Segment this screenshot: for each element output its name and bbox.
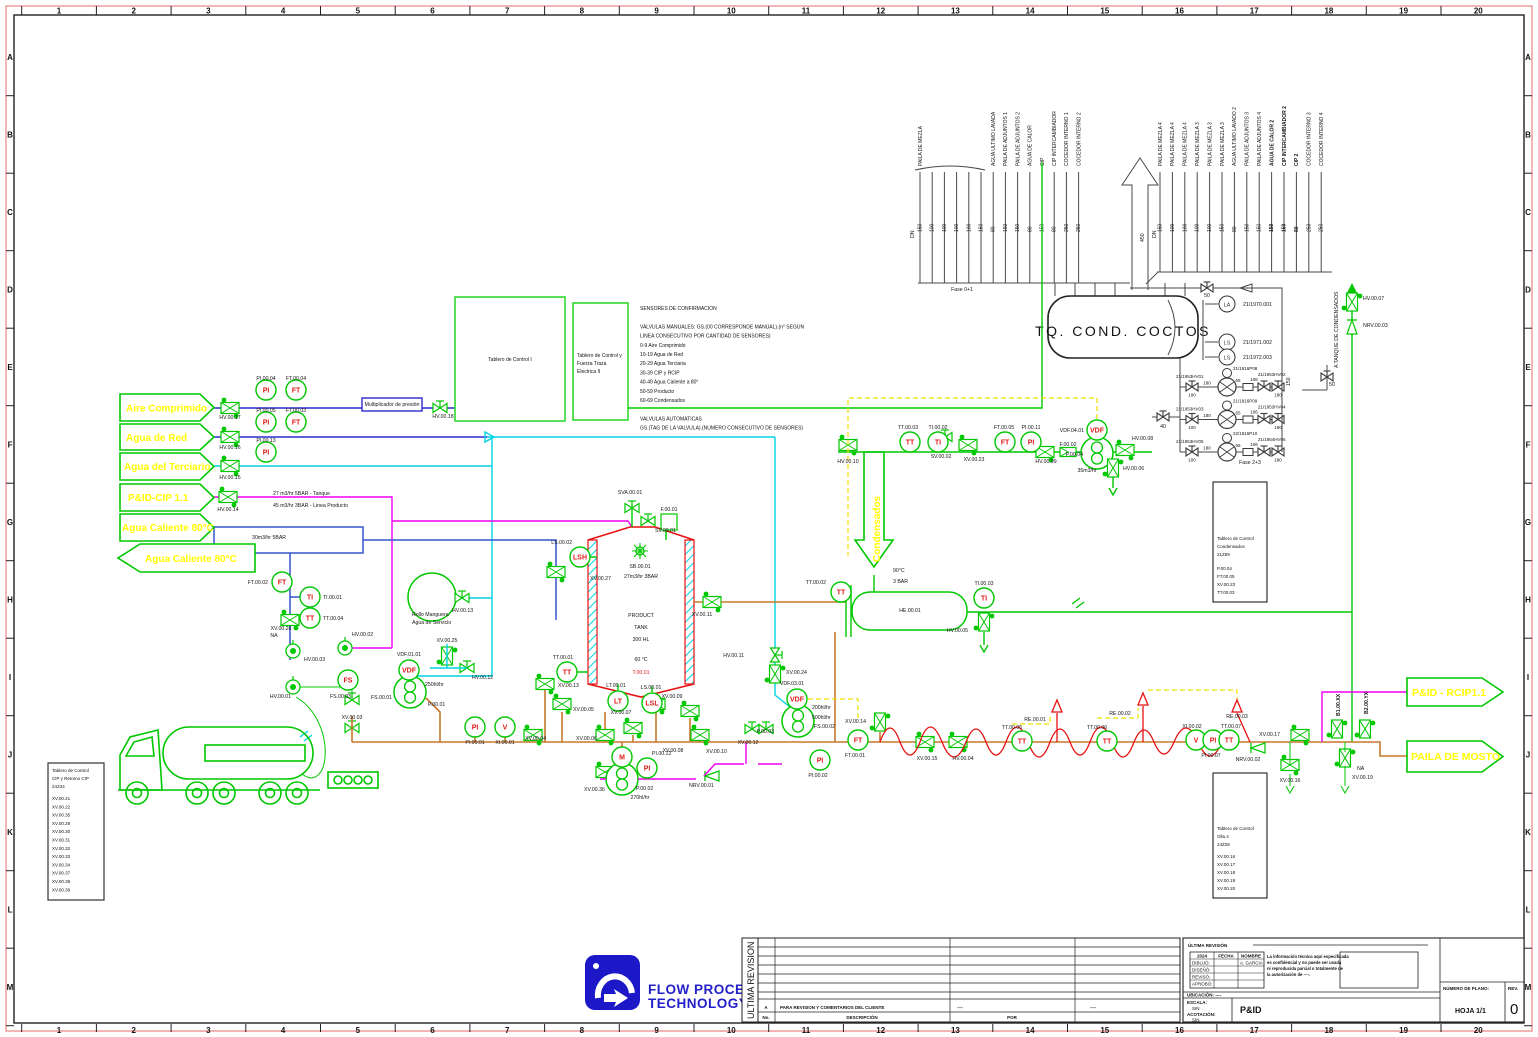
instrument-bubble: PI PI.00.04 (256, 376, 276, 400)
svg-text:J: J (1526, 751, 1530, 760)
svg-text:NRV.00.03: NRV.00.03 (1363, 323, 1388, 329)
svg-text:FT.00.03: FT.00.03 (286, 408, 306, 414)
right-destination: P&ID - RCIP1.1 PAILA DE MOSTO (1251, 678, 1503, 793)
svg-text:HV.00.02: HV.00.02 (352, 632, 373, 638)
svg-text:F: F (1526, 441, 1531, 450)
instrument-bubble: FT FT.00.03 (286, 408, 306, 432)
flag-aire-comprimido: Aire Comprimido (120, 394, 214, 421)
pipe-riser: PAILA DE ADJUNTOS 1 150 (1003, 112, 1009, 283)
grid-row-label: M (1524, 983, 1532, 1026)
grid-col-label: 20 (1441, 1024, 1483, 1035)
note-line: LINEA CONSECUTIVO POR CANTIDAD DE SENSOR… (640, 334, 771, 340)
board-title: CIP y Retorno CIP (52, 776, 89, 781)
svg-text:21/1971.002: 21/1971.002 (1243, 340, 1272, 346)
board-item: XV.00.21 (52, 796, 71, 801)
svg-text:TT.00.01: TT.00.01 (553, 655, 573, 661)
svg-text:Agua del Terciario: Agua del Terciario (124, 462, 211, 473)
grid-col-label: 6 (395, 6, 435, 16)
svg-text:HV.00.05: HV.00.05 (947, 628, 968, 634)
pipe-riser: COCEDOR INTERNO 2 250 (1076, 112, 1082, 283)
pipe-riser: PAILA DE MEZLA 3 100 (1194, 122, 1201, 272)
svg-text:150: 150 (1286, 377, 1292, 386)
svg-text:4: 4 (281, 7, 286, 16)
svg-text:XV.00.33: XV.00.33 (52, 854, 71, 859)
svg-text:PAILA DE MEZLA 3: PAILA DE MEZLA 3 (1207, 122, 1213, 166)
tag-label: Agua de Servicio (412, 620, 451, 626)
svg-text:PAILA DE ADJUNTOS 3: PAILA DE ADJUNTOS 3 (1245, 112, 1251, 166)
instrument-bubble: TT TT.00.05 (1002, 725, 1032, 751)
svg-text:10: 10 (727, 1026, 736, 1035)
grid-col-label: 10 (694, 6, 736, 16)
revision-header-no: No. (762, 1015, 769, 1020)
svg-text:PI.00.01: PI.00.01 (465, 740, 484, 746)
svg-text:40: 40 (1160, 424, 1166, 430)
svg-text:XV.00.21: XV.00.21 (52, 796, 71, 801)
tag-label: 40 (1160, 424, 1166, 430)
svg-text:XV.00.14: XV.00.14 (845, 719, 866, 725)
tag-label: DN (910, 230, 916, 238)
svg-text:PI: PI (817, 758, 824, 765)
product-tank (577, 501, 846, 697)
flag-mosto: PAILA DE MOSTO (1407, 741, 1503, 772)
control-panel-2-label: Electrica II (577, 369, 600, 375)
grid-col-label: 13 (918, 6, 960, 16)
tag-label: HV.00.12 (472, 675, 493, 681)
svg-text:XV.00.20: XV.00.20 (1217, 886, 1236, 891)
svg-text:150: 150 (1003, 223, 1009, 232)
svg-text:TT.00.02: TT.00.02 (806, 580, 826, 586)
svg-text:150: 150 (1158, 223, 1164, 232)
tag-label: HV.00.01 (270, 694, 291, 700)
svg-text:DN: DN (1152, 230, 1158, 238)
svg-text:T.00.01: T.00.01 (632, 670, 649, 676)
title-year: 2024 (1197, 954, 1208, 959)
pump-train: 21/1953HV05 22/1816P10 21/1954HV06 100 1… (1176, 431, 1286, 463)
svg-text:XV.00.17: XV.00.17 (1217, 862, 1236, 867)
title-rev-label: REV. (1508, 986, 1518, 991)
svg-text:HV.00.13: HV.00.13 (452, 608, 473, 614)
instrument-bubble: PI PI.00.11 (1021, 425, 1041, 452)
svg-text:17: 17 (1250, 1026, 1259, 1035)
title-aprobo: APROBÓ: (1192, 981, 1213, 987)
tag-label: HV.00.04 (952, 756, 973, 762)
svg-text:TT.00.03: TT.00.03 (1217, 590, 1235, 595)
tag-label: FS.00.02 (814, 724, 835, 730)
svg-text:PI.00.05: PI.00.05 (256, 408, 275, 414)
svg-text:PI: PI (1028, 440, 1035, 447)
svg-text:PAILA DE MEZLA 3: PAILA DE MEZLA 3 (1195, 122, 1201, 166)
instrument-bubble: M (612, 747, 632, 767)
svg-text:K: K (1525, 828, 1531, 837)
grid-col-label: 20 (1441, 6, 1483, 16)
tag-label: 50 (1204, 293, 1210, 299)
tag-label: 270hl/hr (631, 795, 650, 801)
svg-text:FT.00.04: FT.00.04 (286, 376, 306, 382)
tag-label: HV.00.05 (947, 628, 968, 634)
note-line: 10-19 Agua de Red (640, 352, 683, 358)
board-title: Tablero de Control (1217, 826, 1254, 831)
svg-text:XV.00.16: XV.00.16 (1217, 854, 1236, 859)
svg-text:7: 7 (505, 1026, 510, 1035)
svg-text:TT.00.06: TT.00.06 (1087, 725, 1107, 731)
svg-text:6: 6 (430, 7, 435, 16)
tag-label: Fase 2+3 (1239, 460, 1261, 466)
grid-row-label: I (1524, 673, 1532, 716)
tag-label: NA (270, 633, 278, 639)
svg-text:60 °C: 60 °C (634, 657, 647, 663)
grid-col-label: 3 (171, 6, 211, 16)
svg-text:250: 250 (1306, 223, 1312, 232)
svg-text:50-59 Producto: 50-59 Producto (640, 389, 674, 395)
grid-col-label: 13 (918, 1024, 960, 1035)
svg-text:21/1953HV03: 21/1953HV03 (1176, 407, 1204, 412)
pipe-riser: AGUA ULTIMO LAVADA 80 (991, 111, 997, 283)
board-item: XV.00.18 (1217, 870, 1236, 875)
tank-title: TQ. COND. COCTOS (1035, 323, 1211, 339)
svg-text:180: 180 (1203, 446, 1211, 451)
svg-text:PI.00.02: PI.00.02 (808, 773, 827, 779)
board-title: Tablero de Control (1217, 536, 1254, 541)
svg-text:HV.00.12: HV.00.12 (472, 675, 493, 681)
svg-text:I: I (1527, 673, 1529, 682)
instrument-bubble: FT FT.00.05 (994, 425, 1015, 452)
svg-text:B2.00.YX: B2.00.YX (1364, 691, 1370, 714)
instrument-bubble: PI PI.00.02 (808, 750, 830, 779)
tag-label: HV.00.15 (219, 475, 240, 481)
svg-text:F.00.01: F.00.01 (660, 507, 677, 513)
instrument-bubble: LS 21/1971.002 (1219, 334, 1272, 350)
grid-col-label: 9 (619, 6, 659, 16)
svg-text:P&ID-CIP 1.1: P&ID-CIP 1.1 (128, 493, 189, 504)
svg-text:ni reproducida parcial o total: ni reproducida parcial o totalmente de (1267, 966, 1344, 971)
svg-text:180: 180 (1203, 413, 1211, 418)
instrument-bubble: VDF VDF.04.01 (1060, 420, 1107, 440)
svg-text:80: 80 (1027, 226, 1033, 232)
grid-col-label: 18 (1292, 6, 1334, 16)
note-line: 40-49 Agua Caliente a 80° (640, 380, 698, 386)
tag-label: HE.00.01 (899, 608, 921, 614)
note-line: 30-39 CIP y RCIP (640, 370, 680, 376)
tag-label: SV.00.02 (931, 454, 952, 460)
svg-text:LINEA CONSECUTIVO POR CANTIDAD: LINEA CONSECUTIVO POR CANTIDAD DE SENSOR… (640, 334, 771, 340)
board-title: 24Z34 (52, 784, 65, 789)
svg-text:FS: FS (344, 678, 353, 685)
pipe-riser: PAILA DE MEZLA 3 100 (1207, 122, 1214, 272)
board-title: Condensados (1217, 544, 1246, 549)
grid-col-label: 15 (1068, 6, 1110, 16)
svg-text:TT.00.04: TT.00.04 (323, 616, 343, 622)
title-reviso: REVISÓ: (1192, 974, 1210, 980)
note-line: 60-69 Condensados (640, 398, 686, 404)
svg-text:30m3/hr 5BAR: 30m3/hr 5BAR (252, 535, 286, 541)
svg-text:150: 150 (1015, 223, 1021, 232)
svg-text:150: 150 (1257, 223, 1263, 232)
title-diseno: DISEÑÓ: (1192, 967, 1211, 973)
flag-agua-de-red: Agua de Red (120, 424, 214, 450)
svg-text:PI.00.13: PI.00.13 (256, 438, 275, 444)
svg-text:15: 15 (1100, 7, 1109, 16)
svg-text:XV.00.23: XV.00.23 (1217, 582, 1236, 587)
svg-text:180: 180 (1203, 381, 1211, 386)
svg-text:3 BAR: 3 BAR (893, 579, 908, 585)
svg-text:V: V (1194, 738, 1199, 745)
svg-text:HV.00.01: HV.00.01 (270, 694, 291, 700)
grid-row-label: B (1524, 131, 1532, 174)
tag-label: 150 (1286, 377, 1292, 386)
svg-text:500hl/hr: 500hl/hr (812, 715, 831, 721)
board-item: P.00.04 (1217, 566, 1232, 571)
svg-text:XV.00.12: XV.00.12 (738, 740, 759, 746)
svg-text:12: 12 (876, 1026, 885, 1035)
title-fecha: FECHA (1218, 954, 1234, 959)
svg-text:P.00.04: P.00.04 (1066, 452, 1083, 458)
svg-text:TT.00.05: TT.00.05 (1002, 725, 1022, 731)
pipe-riser: PAILA DE MEZLA 4 150 (1157, 122, 1164, 272)
heat-exchanger (835, 575, 1352, 742)
svg-text:3: 3 (206, 1026, 211, 1035)
svg-text:180: 180 (1274, 458, 1282, 463)
svg-text:XV.00.34: XV.00.34 (52, 862, 71, 867)
svg-text:PI: PI (472, 725, 479, 732)
svg-text:L: L (8, 906, 13, 915)
svg-text:150: 150 (1269, 223, 1275, 232)
instrument-bubble: LSL LS.00.01 (641, 685, 662, 713)
svg-text:14: 14 (1026, 1026, 1035, 1035)
pipe-header-group-1: PAILA DE MEZLA 150 100 100 100 100 (915, 111, 1185, 296)
svg-text:XV.00.06: XV.00.06 (576, 736, 597, 742)
svg-text:XV.00.11: XV.00.11 (692, 612, 713, 618)
svg-text:106: 106 (1250, 410, 1258, 415)
svg-text:XV.00.25: XV.00.25 (437, 638, 458, 644)
tag-label: XV.00.17 (1259, 732, 1280, 738)
instrument-bubble: PI PI.00.13 (256, 438, 276, 462)
svg-text:21/1972.003: 21/1972.003 (1243, 355, 1272, 361)
svg-text:PI: PI (263, 420, 270, 427)
svg-text:TT: TT (1018, 739, 1027, 746)
title-rev-value: 0 (1510, 1001, 1518, 1018)
svg-text:16: 16 (1175, 1026, 1184, 1035)
svg-text:TT: TT (306, 616, 315, 623)
svg-text:LA: LA (1224, 303, 1231, 309)
svg-text:FS.00.01: FS.00.01 (371, 695, 392, 701)
board-cip: Tablero de Control CIP y Retorno CIP 24Z… (48, 763, 104, 900)
pipe-riser: COCEDOR INTERNO 3 250 (1306, 112, 1313, 272)
svg-text:VALVULAS AUTOMATICAS: VALVULAS AUTOMATICAS (640, 416, 703, 422)
instrument-bubble: LSH LS.00.02 (551, 540, 590, 567)
title-escala: ESCALA: (1187, 1000, 1208, 1005)
pipe-riser: COCEDOR INTERNO 4 250 (1318, 112, 1325, 272)
svg-text:AGUA ULTIMO LAVADO 2: AGUA ULTIMO LAVADO 2 (1232, 107, 1238, 166)
svg-text:XV.00.15: XV.00.15 (917, 756, 938, 762)
svg-text:PI.00.07: PI.00.07 (1201, 753, 1220, 759)
svg-text:DN: DN (910, 230, 916, 238)
svg-text:XV.00.31: XV.00.31 (52, 838, 71, 843)
svg-text:XV.00.30: XV.00.30 (52, 829, 71, 834)
svg-text:SV.00.01: SV.00.01 (655, 528, 676, 534)
svg-text:1: 1 (57, 7, 62, 16)
svg-text:FT: FT (278, 580, 287, 587)
svg-text:22/1816P10: 22/1816P10 (1233, 431, 1258, 436)
pipe-riser: PAILA DE ADJUNTOS 3 150 (1244, 112, 1251, 272)
pipe-riser: CIP INTERCAMBIADOR 2 150 (1281, 106, 1288, 272)
svg-text:FT: FT (854, 738, 863, 745)
svg-text:250: 250 (1319, 223, 1325, 232)
tag-label: P.00.01 (428, 702, 445, 708)
tag-label: HV.00.08 (1132, 436, 1153, 442)
svg-text:H: H (7, 596, 13, 605)
grid-row-label: K (6, 828, 14, 871)
svg-text:NRV.00.02: NRV.00.02 (1236, 757, 1261, 763)
svg-text:2: 2 (131, 7, 136, 16)
big-vent-arrow (1122, 158, 1158, 290)
tag-label: P.00.02 (636, 786, 653, 792)
svg-text:27m3/hr 3BAR: 27m3/hr 3BAR (624, 574, 658, 580)
board-item: XV.00.20 (1217, 886, 1236, 891)
svg-text:5: 5 (356, 7, 361, 16)
tag-label: P.00.03 (757, 729, 774, 735)
svg-text:Agua de Servicio: Agua de Servicio (412, 620, 451, 626)
board-item: XV.00.31 (52, 838, 71, 843)
grid-col-label: 16 (1142, 6, 1184, 16)
grid-row-label: G (1524, 518, 1532, 561)
pipe-riser: 100 (942, 172, 948, 283)
grid-col-label: 15 (1068, 1024, 1110, 1035)
svg-text:XV.00.24: XV.00.24 (786, 670, 807, 676)
grid-col-label: 8 (545, 1024, 585, 1035)
svg-text:50: 50 (1329, 382, 1335, 388)
tag-label: P.00.04 (1066, 452, 1083, 458)
pipe-riser: 150 (979, 172, 985, 283)
svg-text:C: C (1525, 208, 1531, 217)
grid-row-label: D (6, 286, 14, 329)
board-item: XV.00.17 (1217, 862, 1236, 867)
svg-text:9: 9 (654, 7, 659, 16)
note-line: 20-29 Agua Terciaria (640, 361, 686, 367)
svg-text:B1.00.XX: B1.00.XX (1336, 693, 1342, 716)
tag-label: FS.00.03 (330, 694, 351, 700)
svg-text:8: 8 (580, 7, 585, 16)
tag-label: HV.00.06 (1123, 466, 1144, 472)
svg-text:11: 11 (802, 7, 811, 16)
board-item: XV.00.32 (52, 846, 71, 851)
instrument-bubble: FT FT.00.02 (248, 572, 292, 592)
tag-label: 500hl/hr (812, 715, 831, 721)
svg-text:PI: PI (1210, 738, 1217, 745)
svg-text:14: 14 (1026, 7, 1035, 16)
pump-p0002 (606, 763, 638, 795)
svg-text:PI.00.11: PI.00.11 (1022, 425, 1041, 431)
svg-text:P.00.02: P.00.02 (636, 786, 653, 792)
svg-text:21/1953HV01: 21/1953HV01 (1176, 374, 1204, 379)
tag-label: XV.00.19 (1352, 775, 1373, 781)
instrument-bubble: FT FT.00.01 (845, 730, 868, 759)
svg-text:HV.00.14: HV.00.14 (217, 507, 238, 513)
svg-text:Fase 2+3: Fase 2+3 (1239, 460, 1261, 466)
svg-text:PI: PI (644, 766, 651, 773)
grid-col-label: 2 (96, 1024, 136, 1035)
svg-text:Rollo Manguera: Rollo Manguera (412, 612, 449, 618)
svg-text:10-19 Agua de Red: 10-19 Agua de Red (640, 352, 683, 358)
svg-text:COCEDOR INTERNO 1: COCEDOR INTERNO 1 (1064, 112, 1070, 166)
svg-text:PAILA DE MEZLA 3: PAILA DE MEZLA 3 (1220, 122, 1226, 166)
grid-col-label: 2 (96, 6, 136, 16)
svg-text:XV.00.38: XV.00.38 (52, 879, 71, 884)
svg-text:21/1816P09: 21/1816P09 (1233, 399, 1258, 404)
svg-text:40-49 Agua Caliente a 80°: 40-49 Agua Caliente a 80° (640, 380, 698, 386)
svg-text:100: 100 (930, 223, 936, 232)
svg-text:I: I (9, 673, 11, 682)
grid-col-label: 5 (321, 6, 361, 16)
grid-col-label: 7 (470, 1024, 510, 1035)
svg-text:3: 3 (206, 7, 211, 16)
pipe-riser: CIP INTERCAMBIADOR 80 (1052, 111, 1058, 283)
svg-text:XV.00.39: XV.00.39 (52, 887, 71, 892)
svg-text:XV.00.19: XV.00.19 (1217, 878, 1236, 883)
svg-text:TI: TI (981, 596, 987, 603)
grid-col-label: 11 (769, 1024, 811, 1035)
title-acotacion-value: SIN (1192, 1018, 1200, 1023)
grid-col-label: 12 (843, 1024, 885, 1035)
svg-text:PI.00.04: PI.00.04 (256, 376, 275, 382)
grid-row-label: D (1524, 286, 1532, 329)
pipe-riser: AGUA ULTIMO LAVADO 2 80 (1231, 107, 1238, 272)
svg-text:PI: PI (263, 388, 270, 395)
svg-text:250hl/hr: 250hl/hr (425, 682, 444, 688)
tag-label: Fase 0+1 (951, 287, 973, 293)
svg-text:B: B (7, 131, 13, 140)
svg-text:65: 65 (1235, 443, 1241, 448)
flag-agua-caliente-out: Agua Caliente 80°C (118, 544, 255, 572)
svg-text:Agua de Red: Agua de Red (126, 433, 187, 444)
grid-col-label: 4 (246, 1024, 286, 1035)
note-line: 0-9 Aire Comprimido (640, 343, 686, 349)
sheet-frame: 1234567891011121314151617181920 12345678… (6, 6, 1532, 1035)
svg-text:CIP: CIP (1040, 157, 1046, 166)
tag-label: 30m3/hr 5BAR (252, 535, 286, 541)
board-item: XV.00.33 (52, 854, 71, 859)
note-line: SENSORES DE CONFIRMACION (640, 306, 717, 312)
tag-label: XV.00.36 (584, 787, 605, 793)
svg-text:XI.00.01: XI.00.01 (495, 740, 514, 746)
svg-text:XV.00.23: XV.00.23 (964, 457, 985, 463)
tag-label: HV.00.09 (1035, 459, 1056, 465)
board-item: XV.00.34 (52, 862, 71, 867)
svg-text:XV.00.37: XV.00.37 (52, 871, 71, 876)
tag-label: HV.00.14 (217, 507, 238, 513)
tag-label: XV.00.12 (738, 740, 759, 746)
board-title: 24Z28 (1217, 842, 1230, 847)
instrument-bubble: FS (338, 670, 358, 690)
tag-label: HV.00.13 (452, 608, 473, 614)
grid-rows-left: ABCDEFGHIJKLM (6, 53, 14, 1026)
instrument-bubble: TT TT.00.02 (806, 580, 851, 602)
grid-col-label: 14 (993, 6, 1035, 16)
svg-text:XI.00.02: XI.00.02 (1182, 724, 1201, 730)
svg-text:TT: TT (1225, 738, 1234, 745)
svg-text:NA: NA (1357, 766, 1365, 772)
svg-text:A: A (1525, 53, 1531, 62)
grid-row-label: K (1524, 828, 1532, 871)
instrument-bubble: VDF VDF.03.01 (780, 681, 807, 709)
svg-text:XV.00.10: XV.00.10 (706, 749, 727, 755)
svg-text:HV.00.07: HV.00.07 (1363, 296, 1384, 302)
grid-cols-bottom: 1234567891011121314151617181920 (22, 1024, 1484, 1035)
grid-row-label: I (6, 673, 14, 716)
svg-text:E: E (1525, 363, 1531, 372)
svg-text:COCEDOR INTERNO 3: COCEDOR INTERNO 3 (1307, 112, 1313, 166)
svg-text:17: 17 (1250, 7, 1259, 16)
svg-text:XV.00.05: XV.00.05 (573, 707, 594, 713)
